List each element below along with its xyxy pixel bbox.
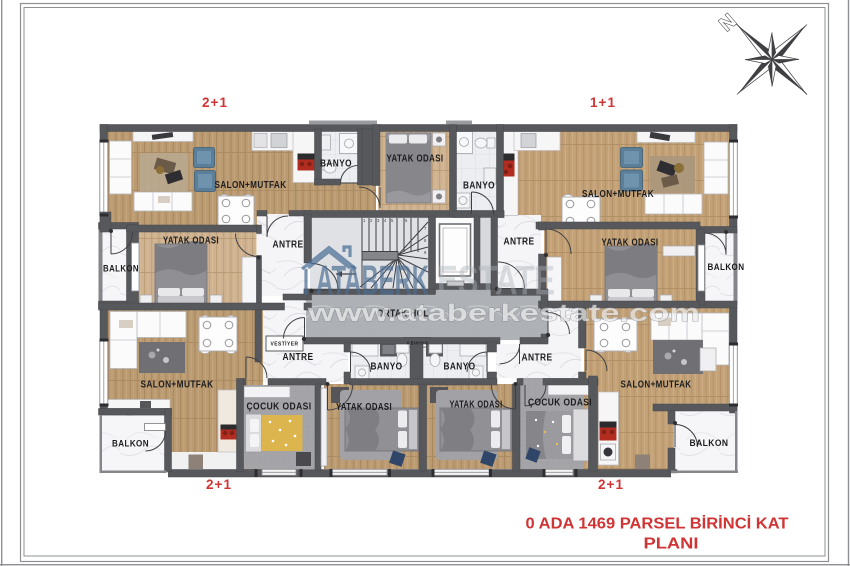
svg-text:2+1: 2+1 bbox=[206, 477, 232, 492]
svg-text:BALKON: BALKON bbox=[112, 439, 149, 450]
svg-text:K.BANYO H: K.BANYO H bbox=[407, 341, 428, 346]
svg-text:SALON+MUTFAK: SALON+MUTFAK bbox=[141, 380, 214, 391]
svg-text:ATABERK: ATABERK bbox=[316, 257, 429, 304]
svg-text:0 ADA 1469 PARSEL BİRİNCİ KAT: 0 ADA 1469 PARSEL BİRİNCİ KAT bbox=[526, 516, 790, 533]
svg-text:BALKON: BALKON bbox=[690, 438, 729, 449]
svg-text:1+1: 1+1 bbox=[590, 95, 616, 110]
svg-text:SALON+MUTFAK: SALON+MUTFAK bbox=[582, 189, 654, 200]
svg-text:YATAK ODASI: YATAK ODASI bbox=[450, 400, 503, 411]
svg-text:BALKON: BALKON bbox=[103, 264, 139, 275]
svg-text:ÇOCUK ODASI: ÇOCUK ODASI bbox=[247, 402, 312, 413]
svg-text:YATAK ODASI: YATAK ODASI bbox=[163, 236, 219, 247]
svg-text:YATAK ODASI: YATAK ODASI bbox=[602, 238, 659, 249]
svg-text:ANTRE: ANTRE bbox=[522, 353, 553, 364]
svg-text:BANYO: BANYO bbox=[444, 362, 476, 373]
svg-text:YATAK ODASI: YATAK ODASI bbox=[387, 154, 444, 165]
svg-text:VESTİYER: VESTİYER bbox=[271, 341, 299, 348]
svg-text:YATAK ODASI: YATAK ODASI bbox=[336, 402, 392, 413]
svg-text:ANTRE: ANTRE bbox=[283, 352, 314, 363]
svg-text:SALON+MUTFAK: SALON+MUTFAK bbox=[215, 180, 287, 191]
svg-text:ÇOCUK ODASI: ÇOCUK ODASI bbox=[528, 398, 592, 409]
svg-text:BANYO: BANYO bbox=[320, 159, 352, 170]
svg-text:BANYO: BANYO bbox=[371, 362, 403, 373]
svg-text:www.ataberkestate.com: www.ataberkestate.com bbox=[307, 300, 700, 327]
svg-text:BANYO: BANYO bbox=[463, 181, 495, 192]
svg-text:ANTRE: ANTRE bbox=[504, 237, 535, 248]
svg-text:ANTRE: ANTRE bbox=[273, 240, 304, 251]
svg-text:2+1: 2+1 bbox=[598, 477, 624, 492]
svg-text:PLANI: PLANI bbox=[644, 536, 699, 553]
svg-text:2+1: 2+1 bbox=[202, 95, 228, 110]
svg-text:SALON+MUTFAK: SALON+MUTFAK bbox=[621, 380, 692, 391]
svg-text:ESTATE: ESTATE bbox=[437, 257, 555, 304]
svg-text:BALKON: BALKON bbox=[708, 262, 745, 273]
